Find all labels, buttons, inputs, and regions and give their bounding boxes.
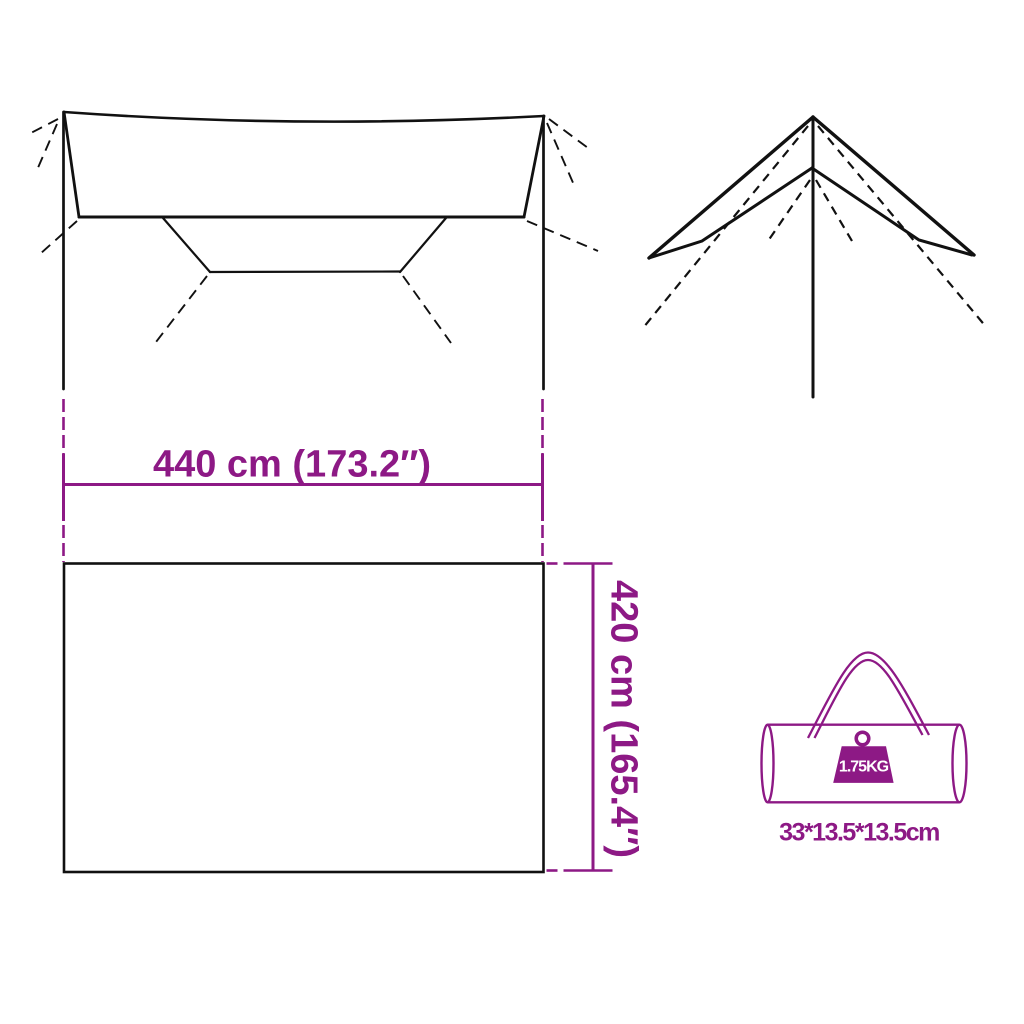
svg-text:1.75KG: 1.75KG bbox=[839, 759, 889, 776]
svg-text:440 cm (173.2″): 440 cm (173.2″) bbox=[153, 444, 431, 486]
svg-text:420 cm (165.4″): 420 cm (165.4″) bbox=[603, 580, 645, 858]
svg-text:33*13.5*13.5cm: 33*13.5*13.5cm bbox=[779, 819, 939, 847]
